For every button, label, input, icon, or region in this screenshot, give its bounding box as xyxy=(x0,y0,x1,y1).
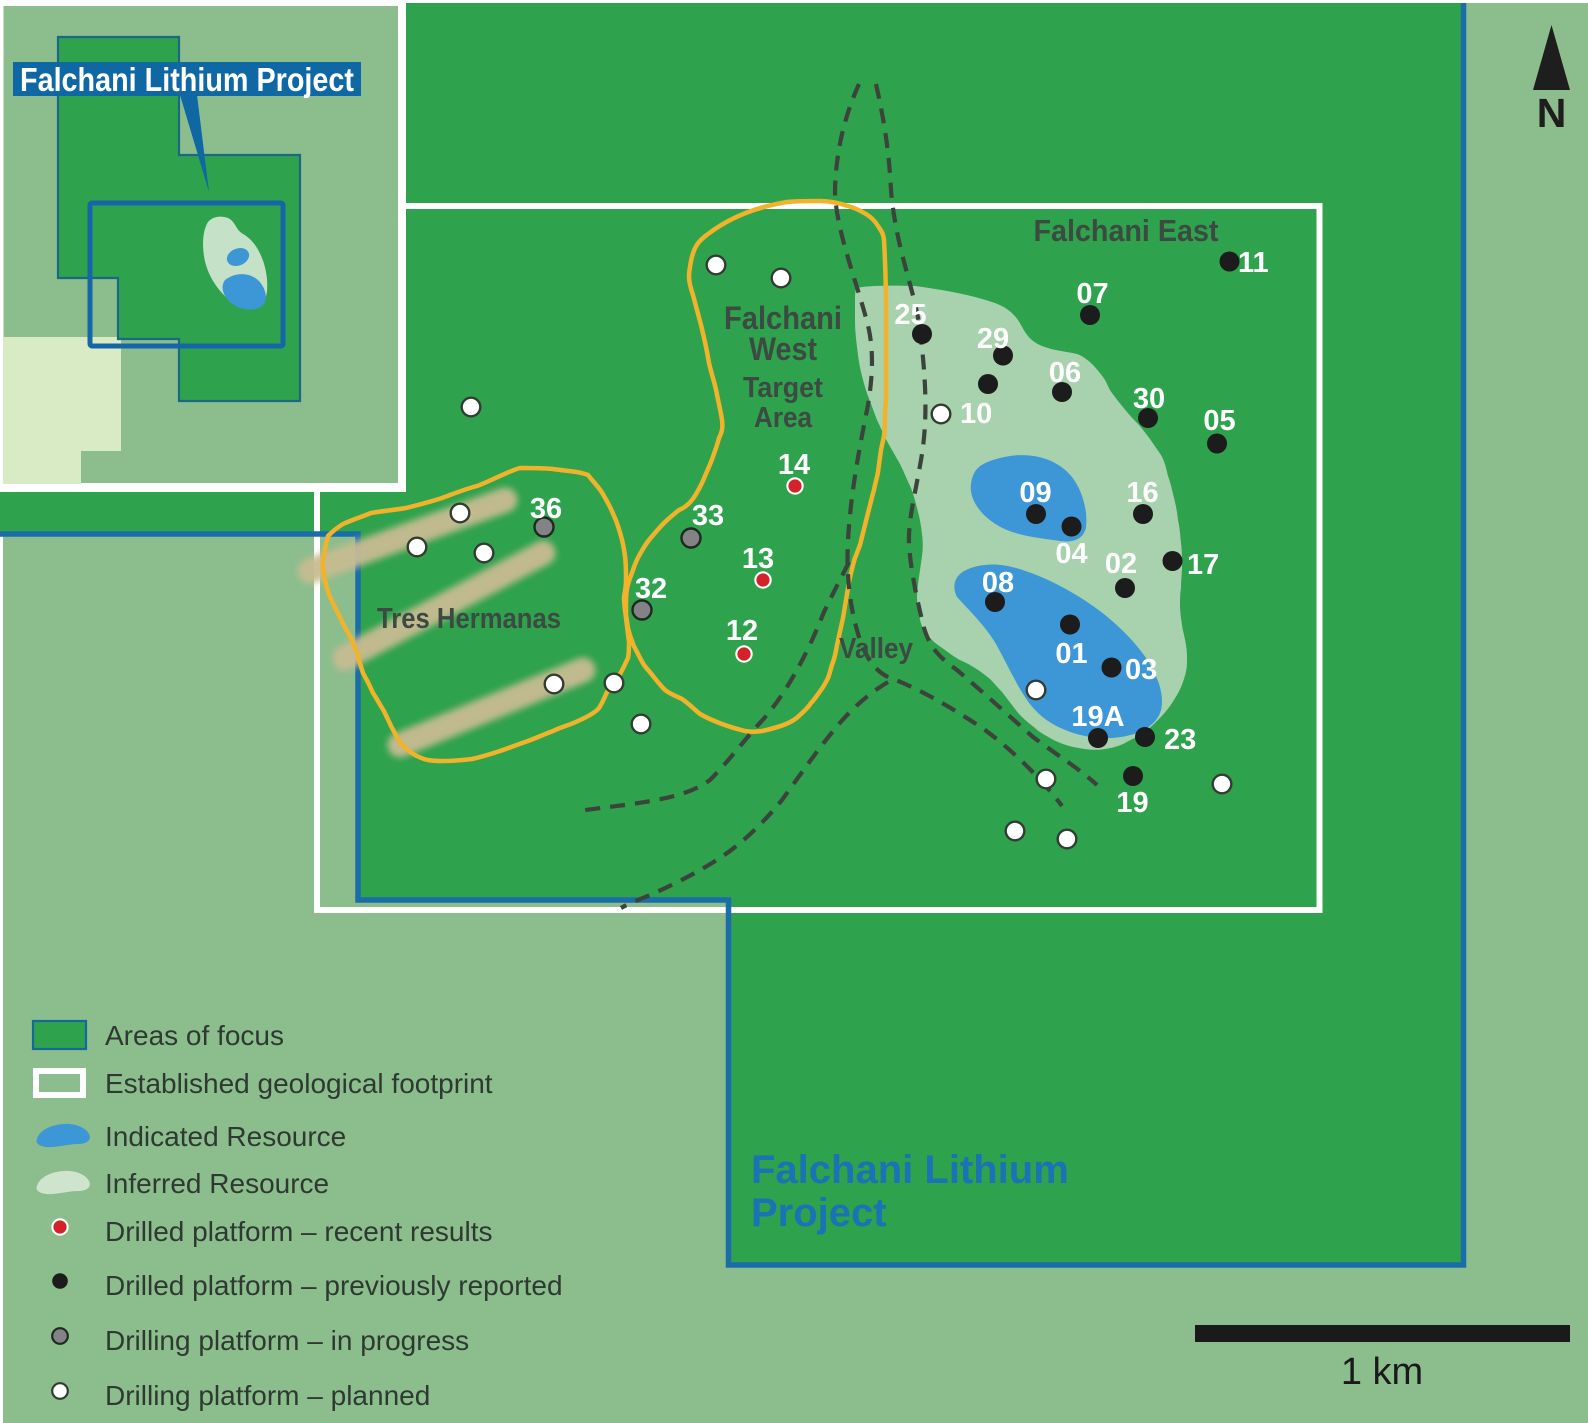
svg-text:Falchani Lithium Project: Falchani Lithium Project xyxy=(20,61,354,98)
svg-text:West: West xyxy=(749,331,817,367)
svg-text:02: 02 xyxy=(1105,548,1137,580)
svg-text:Tres Hermanas: Tres Hermanas xyxy=(377,603,561,635)
svg-text:Valley: Valley xyxy=(839,633,913,665)
svg-text:1 km: 1 km xyxy=(1341,1351,1423,1393)
svg-text:Established geological footpri: Established geological footprint xyxy=(105,1068,493,1099)
svg-text:14: 14 xyxy=(778,449,810,481)
svg-text:06: 06 xyxy=(1049,357,1081,389)
svg-text:01: 01 xyxy=(1055,638,1087,670)
svg-text:07: 07 xyxy=(1076,278,1108,310)
svg-text:Falchani Lithium: Falchani Lithium xyxy=(751,1148,1069,1192)
svg-text:33: 33 xyxy=(692,500,724,532)
svg-text:Indicated Resource: Indicated Resource xyxy=(105,1121,346,1152)
svg-text:Drilled platform – recent resu: Drilled platform – recent results xyxy=(105,1216,492,1247)
svg-text:Falchani East: Falchani East xyxy=(1034,213,1219,248)
svg-text:16: 16 xyxy=(1126,477,1158,509)
svg-text:Drilled platform – previously: Drilled platform – previously reported xyxy=(105,1270,563,1301)
svg-text:Target: Target xyxy=(743,372,823,404)
svg-text:N: N xyxy=(1537,90,1567,136)
svg-text:Inferred Resource: Inferred Resource xyxy=(105,1168,329,1199)
svg-text:09: 09 xyxy=(1019,477,1051,509)
svg-text:Drilling platform – in progres: Drilling platform – in progress xyxy=(105,1325,469,1356)
svg-text:36: 36 xyxy=(530,493,562,525)
svg-text:04: 04 xyxy=(1055,538,1087,570)
svg-text:08: 08 xyxy=(982,567,1014,599)
svg-text:17: 17 xyxy=(1187,549,1219,581)
svg-text:Drilling platform – planned: Drilling platform – planned xyxy=(105,1380,430,1411)
svg-text:12: 12 xyxy=(726,615,758,647)
svg-text:19A: 19A xyxy=(1071,701,1124,733)
svg-text:23: 23 xyxy=(1164,724,1196,756)
svg-text:25: 25 xyxy=(894,299,926,331)
svg-text:03: 03 xyxy=(1125,654,1157,686)
svg-text:10: 10 xyxy=(960,398,992,430)
svg-text:05: 05 xyxy=(1203,405,1235,437)
svg-text:30: 30 xyxy=(1133,383,1165,415)
svg-text:29: 29 xyxy=(977,323,1009,355)
svg-text:32: 32 xyxy=(635,573,667,605)
svg-text:Area: Area xyxy=(754,402,813,434)
svg-text:Areas of focus: Areas of focus xyxy=(105,1020,284,1051)
svg-text:13: 13 xyxy=(742,543,774,575)
svg-text:19: 19 xyxy=(1116,787,1148,819)
svg-text:11: 11 xyxy=(1238,247,1269,279)
svg-text:Project: Project xyxy=(751,1191,887,1235)
